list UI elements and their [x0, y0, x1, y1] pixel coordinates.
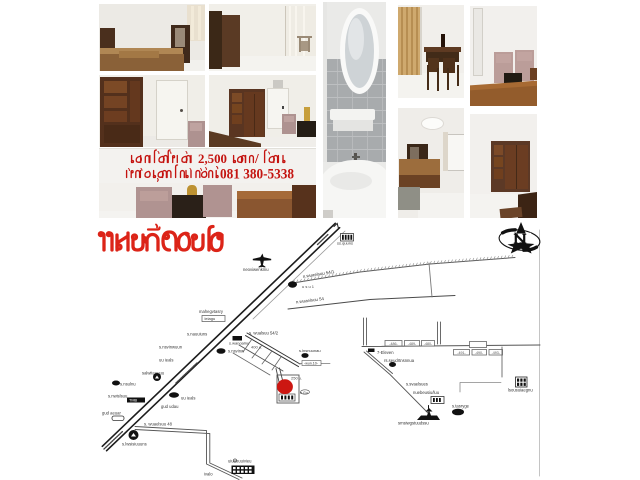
svg-text:mahegvtasry: mahegvtasry — [199, 309, 224, 314]
svg-text:uu ieals: uu ieals — [159, 358, 173, 363]
svg-text:s.nwislsuu: s.nwislsuu — [108, 394, 128, 399]
svg-text:2,500: 2,500 — [198, 152, 227, 166]
svg-text:s.svaelsues: s.svaelsues — [406, 382, 428, 387]
svg-text:s. wuaelsuu 48: s. wuaelsuu 48 — [144, 422, 173, 427]
svg-text:TMB: TMB — [129, 399, 137, 403]
svg-text:lsousuiaegnu: lsousuiaegnu — [508, 388, 533, 393]
svg-text:s.lwsisiuuuns: s.lwsisiuuuns — [122, 442, 147, 447]
svg-text:smsiwgstuudssu: smsiwgstuudssu — [398, 421, 429, 426]
svg-text:-491-: -491- — [457, 351, 466, 355]
svg-text:u s u 1: u s u 1 — [302, 284, 315, 289]
svg-text:nuebeusiu/luu: nuebeusiu/luu — [413, 390, 440, 395]
svg-text:400 u.: 400 u. — [251, 345, 262, 350]
svg-text:s. wualsuu 54/2: s. wualsuu 54/2 — [249, 331, 279, 336]
svg-text:s.nauuiuns: s.nauuiuns — [187, 332, 207, 337]
svg-text:gud udau: gud udau — [161, 404, 179, 409]
svg-text:neoviwenkmu: neoviwenkmu — [243, 267, 269, 272]
svg-text:gud aeuar: gud aeuar — [102, 411, 121, 416]
svg-text:leiagu: leiagu — [205, 316, 216, 321]
svg-text:-490-: -490- — [475, 351, 484, 355]
svg-text:-493-: -493- — [492, 351, 501, 355]
svg-text:uu ieals: uu ieals — [181, 396, 195, 401]
svg-text:-480-: -480- — [424, 342, 433, 346]
svg-text:-486-: -486- — [389, 342, 398, 346]
svg-text:7-Eleven: 7-Eleven — [377, 350, 394, 355]
svg-text:rs.seudrtnsnnua: rs.seudrtnsnnua — [384, 358, 415, 363]
svg-text:-489-: -489- — [408, 342, 417, 346]
svg-text:n.wuaelsuu 54: n.wuaelsuu 54 — [296, 296, 325, 304]
svg-text:s.nsvinwuun: s.nsvinwuun — [159, 345, 183, 350]
svg-text:s.lnsnuunau: s.lnsnuunau — [299, 348, 321, 353]
svg-text:s.nsvinw: s.nsvinw — [228, 349, 245, 354]
svg-text:s.nsulnu: s.nsulnu — [120, 382, 136, 387]
svg-text:ss.quuns: ss.quuns — [337, 241, 353, 246]
svg-text:s.tasryge: s.tasryge — [452, 404, 470, 409]
svg-text:s.wanoalnu: s.wanoalnu — [229, 341, 249, 346]
svg-text:salwiteuuuu: salwiteuuuu — [142, 371, 165, 376]
svg-text:uiuaouuivieu: uiuaouuivieu — [228, 459, 252, 464]
svg-text:n.Gu: n.Gu — [300, 391, 308, 395]
svg-text:ivalo: ivalo — [204, 472, 213, 477]
svg-text:081 380-5338: 081 380-5338 — [220, 167, 294, 183]
svg-text:/: / — [254, 151, 259, 166]
svg-text:-wun.10-: -wun.10- — [304, 362, 319, 366]
svg-text:250 u.: 250 u. — [291, 376, 302, 381]
svg-text:n.wuaelsuu 54/1: n.wuaelsuu 54/1 — [302, 269, 335, 279]
